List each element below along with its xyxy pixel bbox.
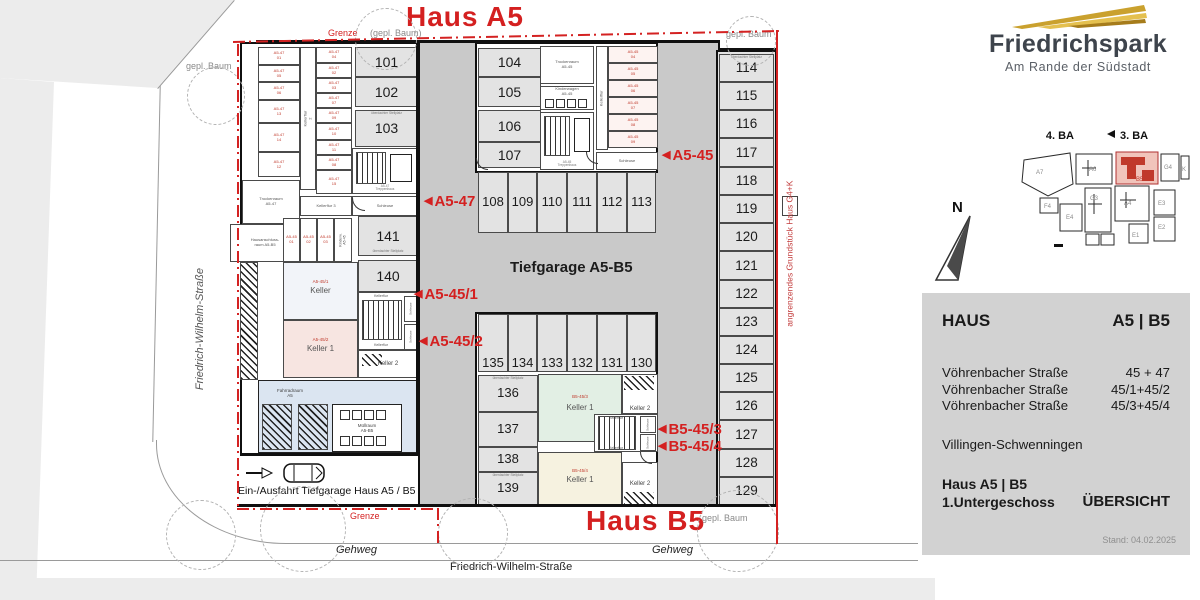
keller-a5-45-07: A5-45 07 xyxy=(608,97,658,114)
stall-109: 109 xyxy=(508,172,537,233)
stall-125: 125 xyxy=(719,364,774,392)
panel-stand-date: Stand: 04.02.2025 xyxy=(1102,535,1176,545)
keller-a5-45-05: A5-45 05 xyxy=(608,63,658,80)
grenze-line-bottom xyxy=(237,508,438,510)
schleuse-c2: Schleuse xyxy=(640,434,656,451)
minimap-label-3ba: 3. BA xyxy=(1120,130,1148,142)
stall-127: 127 xyxy=(719,420,774,449)
pram xyxy=(578,99,587,108)
wall xyxy=(240,453,420,456)
stall-137: 137 xyxy=(478,412,538,447)
stall-128: 128 xyxy=(719,449,774,477)
tag-arrow-icon: ◀ xyxy=(419,336,427,347)
kellerflur-3: Kellerflur 3 xyxy=(300,196,352,216)
stall-117: 117 xyxy=(719,138,774,167)
tag-a5-45-2: ◀A5-45/2 xyxy=(419,334,483,349)
bins-keller2-a xyxy=(362,354,382,366)
ramp-arrow-icon xyxy=(244,466,274,480)
keller-a5-47-15: A5-47 15 xyxy=(316,170,352,194)
stall-115: 115 xyxy=(719,82,774,110)
bin xyxy=(352,410,362,420)
car-icon xyxy=(280,461,328,485)
keller-a5-45-2: Keller 1A5-45/2 xyxy=(283,320,358,378)
wall xyxy=(416,42,419,455)
tag-a5-47: ◀A5-47 xyxy=(424,194,475,209)
stairs-a5-45 xyxy=(544,116,570,156)
keller-a5-47-11: A5-47 11 xyxy=(316,140,352,155)
logo-swoosh-icon xyxy=(1008,3,1148,29)
bin xyxy=(376,410,386,420)
trockenraum-a5-45: Trockenraum A5-45 xyxy=(540,46,594,84)
stall-102: 102 xyxy=(355,77,418,107)
kellerflur-c1: Kellerflur xyxy=(594,414,638,422)
svg-text:A4: A4 xyxy=(1124,201,1132,207)
stall-111: 111 xyxy=(567,172,597,233)
tag-a5-45: ◀A5-45 xyxy=(662,148,713,163)
grundstueck-label: angrenzendes Grundstück Haus G4+K xyxy=(785,162,794,346)
kellerflur-2: Kellerflur 2 xyxy=(300,47,316,190)
keller-a5-45-02: A5-45 02 xyxy=(300,218,317,262)
logo-tagline: Am Rande der Südstadt xyxy=(962,60,1194,74)
planned-tree-circle xyxy=(166,500,236,570)
address-number: 45 + 47 xyxy=(1126,365,1170,382)
pram xyxy=(545,99,554,108)
pram xyxy=(567,99,576,108)
grenze-top: Grenze xyxy=(328,29,358,39)
fw-strasse-left: Friedrich-Wilhelm-Straße xyxy=(194,251,206,407)
address-street: Vöhrenbacher Straße xyxy=(942,398,1068,415)
panel-haus-label: HAUS xyxy=(942,311,990,331)
stall-134: 134 xyxy=(508,314,537,372)
panel-addresses: Vöhrenbacher Straße45 + 47 Vöhrenbacher … xyxy=(942,365,1170,415)
svg-text:E2: E2 xyxy=(1158,225,1166,231)
bin xyxy=(340,436,350,446)
address-number: 45/3+45/4 xyxy=(1111,398,1170,415)
keller-a5-47-04: A5-47 04 xyxy=(316,47,352,63)
svg-text:E4: E4 xyxy=(1066,215,1074,221)
floorplan-page: 114überdachter Stellplatz115116117118119… xyxy=(0,0,1200,600)
svg-text:E3: E3 xyxy=(1158,201,1166,207)
elevator-a5-45 xyxy=(574,118,590,152)
panel-footer-line2: 1.Untergeschoss xyxy=(942,493,1055,511)
stall-131: 131 xyxy=(597,314,627,372)
svg-text:B5: B5 xyxy=(1136,177,1144,183)
keller-a5-45-06: A5-45 06 xyxy=(608,80,658,97)
stall-110: 110 xyxy=(537,172,567,233)
stall-138: 138 xyxy=(478,447,538,472)
grenze-line-bottom-drop xyxy=(437,508,439,544)
kellerflur-b: Kellerflur xyxy=(596,46,608,150)
keller-a5-47-13: A5-47 13 xyxy=(258,100,300,123)
schleuse-c1: Schleuse xyxy=(640,416,656,433)
keller-a5-47-05: A5-47 05 xyxy=(258,65,300,82)
pram xyxy=(556,99,565,108)
gehweg-right: Gehweg xyxy=(652,544,693,556)
planned-tree-circle xyxy=(697,490,779,572)
stall-120: 120 xyxy=(719,223,774,251)
keller-a5-45-08: A5-45 08 xyxy=(608,114,658,131)
keller-a5-47-10: A5-47 10 xyxy=(316,123,352,140)
keller-a5-47-14: A5-47 14 xyxy=(258,123,300,152)
stall-126: 126 xyxy=(719,392,774,420)
svg-text:G4: G4 xyxy=(1164,165,1173,171)
panel-footer-right: ÜBERSICHT xyxy=(1082,492,1170,512)
hatch-strip xyxy=(240,262,258,380)
stairs-a5-47 xyxy=(356,152,386,184)
panel-city: Villingen-Schwenningen xyxy=(942,437,1170,452)
tag-b5-45-3: ◀B5-45/3 xyxy=(658,422,722,437)
bin xyxy=(340,410,350,420)
grenze-line-right xyxy=(776,30,778,544)
stall-121: 121 xyxy=(719,251,774,280)
stall-108: 108 xyxy=(478,172,508,233)
bin xyxy=(364,436,374,446)
planned-tree-circle xyxy=(260,486,346,572)
bin xyxy=(364,410,374,420)
north-arrow-icon: N xyxy=(926,196,984,284)
stall-119: 119 xyxy=(719,195,774,223)
svg-text:A5: A5 xyxy=(1128,163,1136,169)
kinderwagen-a: Kinderw. A5-45 xyxy=(334,218,352,262)
keller-a5-45-04: A5-45 04 xyxy=(608,46,658,63)
stall-105: 105 xyxy=(478,77,541,107)
stall-113: 113 xyxy=(627,172,656,233)
title-haus-b5: Haus B5 xyxy=(586,506,705,537)
stall-104: 104 xyxy=(478,48,541,77)
title-haus-a5: Haus A5 xyxy=(406,2,524,33)
site-overview-minimap: 4. BA 3. BA A7A6G4 KF4E4 A4E3E2 E1G3 A5 … xyxy=(1018,126,1190,254)
keller-a5-45-01: A5-45 01 xyxy=(283,218,300,262)
keller-a5-45-09: A5-45 09 xyxy=(608,131,658,148)
logo: Friedrichspark Am Rande der Südstadt xyxy=(962,3,1194,74)
stall-112: 112 xyxy=(597,172,627,233)
bike-rack-1 xyxy=(262,404,292,450)
tag-arrow-icon: ◀ xyxy=(662,150,670,161)
stall-124: 124 xyxy=(719,336,774,364)
elevator-a5-47 xyxy=(390,154,412,182)
keller-a5-45-03: A5-45 03 xyxy=(317,218,334,262)
address-street: Vöhrenbacher Straße xyxy=(942,382,1068,399)
svg-text:K: K xyxy=(1182,167,1186,173)
keller-a5-47-01: A5-47 01 xyxy=(258,47,300,65)
stall-123: 123 xyxy=(719,308,774,336)
schleuse-b: Schleuse xyxy=(596,152,658,170)
planned-tree-circle xyxy=(726,16,776,66)
info-panel: HAUS A5 | B5 Vöhrenbacher Straße45 + 47 … xyxy=(922,293,1190,555)
keller-a5-47-03: A5-47 03 xyxy=(316,78,352,93)
stall-118: 118 xyxy=(719,167,774,195)
stall-141: 141überdachter Stellplatz xyxy=(358,216,418,256)
keller-a5-47-07: A5-47 07 xyxy=(316,93,352,108)
fahrradraum-label: Fahrradraum A5 xyxy=(260,384,320,402)
tiefgarage-label: Tiefgarage A5-B5 xyxy=(510,260,633,277)
stall-133: 133 xyxy=(537,314,567,372)
tag-a5-45-1: ◀A5-45/1 xyxy=(414,287,478,302)
tag-arrow-icon: ◀ xyxy=(658,424,666,435)
compass-n-label: N xyxy=(952,199,963,216)
kellerflur-core-a2: Kellerflur xyxy=(358,341,404,350)
keller-a5-47-02: A5-47 02 xyxy=(316,63,352,78)
svg-text:F4: F4 xyxy=(1044,204,1052,210)
tag-arrow-icon: ◀ xyxy=(414,289,422,300)
tag-b5-45-4: ◀B5-45/4 xyxy=(658,439,722,454)
planned-tree-circle xyxy=(438,498,508,568)
stall-130: 130 xyxy=(627,314,656,372)
panel-haus-value: A5 | B5 xyxy=(1112,311,1170,331)
stall-140: 140 xyxy=(358,260,418,292)
panel-footer-line1: Haus A5 | B5 xyxy=(942,475,1055,493)
logo-title: Friedrichspark xyxy=(962,30,1194,59)
svg-text:E1: E1 xyxy=(1132,233,1140,239)
stall-116: 116 xyxy=(719,110,774,138)
bin xyxy=(352,436,362,446)
grenze-line-left xyxy=(237,44,239,506)
keller-a5-47-12: A5-47 12 xyxy=(258,152,300,177)
stall-122: 122 xyxy=(719,280,774,308)
svg-text:A6: A6 xyxy=(1089,167,1097,173)
bin xyxy=(376,436,386,446)
stall-132: 132 xyxy=(567,314,597,372)
tag-arrow-icon: ◀ xyxy=(658,441,666,452)
keller-b5-45-4: Keller 1B5-45/4 xyxy=(538,452,622,507)
minimap-label-4ba: 4. BA xyxy=(1046,130,1074,142)
keller-a5-47-09: A5-47 09 xyxy=(316,108,352,123)
grenze-bottom: Grenze xyxy=(350,512,380,522)
address-number: 45/1+45/2 xyxy=(1111,382,1170,399)
bike-rack-2 xyxy=(298,404,328,450)
tag-arrow-icon: ◀ xyxy=(424,196,432,207)
stall-106: 106 xyxy=(478,110,541,142)
stall-103: 103überdachter Stellplatz xyxy=(355,110,418,147)
svg-text:G3: G3 xyxy=(1090,196,1099,202)
keller-a5-47-06: A5-47 06 xyxy=(258,82,300,100)
address-street: Vöhrenbacher Straße xyxy=(942,365,1068,382)
stairs-core-a xyxy=(362,300,402,340)
stall-136: 136überdachter Stellplatz xyxy=(478,375,538,412)
bins-c-top xyxy=(624,376,654,390)
keller-a5-47-08: A5-47 08 xyxy=(316,155,352,170)
minimap-arrow-icon xyxy=(1107,130,1115,138)
svg-text:A7: A7 xyxy=(1036,170,1044,176)
kellerflur-core-a1: Kellerflur xyxy=(358,292,404,301)
panel-footer-left: Haus A5 | B5 1.Untergeschoss xyxy=(942,475,1055,511)
kellerflur-c2: Kellerflur xyxy=(594,444,638,452)
keller-a5-45-1: KellerA5-45/1 xyxy=(283,262,358,320)
